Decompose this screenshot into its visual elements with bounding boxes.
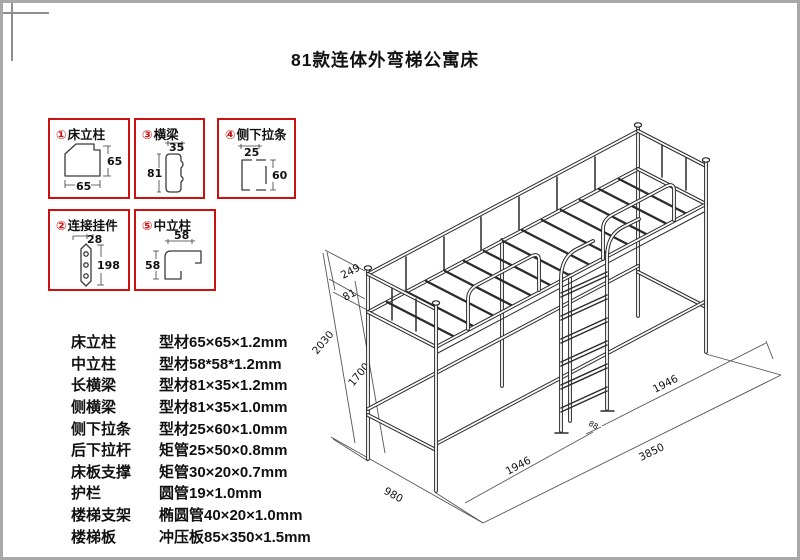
spec-row: 后下拉杆矩管25×50×0.8mm: [71, 439, 311, 461]
spec-row: 护栏圆管19×1.0mm: [71, 482, 311, 504]
spec-part: 中立柱: [71, 353, 159, 374]
dim-1946-left: 1946: [504, 454, 534, 477]
spec-value: 型材81×35×1.0mm: [159, 396, 287, 417]
spec-row: 楼梯板冲压板85×350×1.5mm: [71, 525, 311, 547]
spec-list: 床立柱型材65×65×1.2mm 中立柱型材58*58*1.2mm 长横梁型材8…: [71, 331, 311, 547]
dim-left: 81: [147, 167, 162, 180]
legend-box-connector: ②连接挂件 28 198: [48, 209, 130, 291]
legend-box-crossbeam: ③横梁 35 81: [134, 118, 205, 199]
spec-row: 侧横梁型材81×35×1.0mm: [71, 396, 311, 418]
spec-value: 型材81×35×1.2mm: [159, 374, 287, 395]
spec-part: 楼梯板: [71, 526, 159, 547]
profile-sketch-side-tie: 25 60: [220, 140, 294, 198]
spec-value: 型材58*58*1.2mm: [159, 353, 282, 374]
curved-ladder: [555, 219, 639, 433]
spec-part: 侧横梁: [71, 396, 159, 417]
spec-part: 护栏: [71, 482, 159, 503]
spec-value: 矩管25×50×0.8mm: [159, 439, 287, 460]
profile-sketch-connector: 28 198: [51, 231, 129, 291]
spec-part: 长横梁: [71, 374, 159, 395]
spec-value: 矩管30×20×0.7mm: [159, 461, 287, 482]
spec-row: 床板支撑矩管30×20×0.7mm: [71, 461, 311, 483]
dim-top: 25: [244, 146, 259, 159]
spec-part: 楼梯支架: [71, 504, 159, 525]
legend-box-bed-post: ①床立柱 65 65: [48, 118, 130, 199]
spec-part: 侧下拉条: [71, 418, 159, 439]
ladder-feet: [555, 411, 614, 433]
spec-value: 型材65×65×1.2mm: [159, 331, 287, 352]
profile-sketch-bed-post: 65 65: [51, 140, 129, 198]
spec-value: 椭圆管40×20×1.0mm: [159, 504, 302, 525]
dim-1946-right: 1946: [651, 373, 681, 396]
profile-sketch-crossbeam: 35 81: [137, 140, 203, 198]
dim-right: 198: [97, 259, 120, 272]
dim-88: 88: [587, 419, 600, 432]
dim-right: 65: [107, 155, 122, 168]
sheet-corner-mark-horizontal: [3, 12, 49, 14]
legend-box-side-tie: ④侧下拉条 25 60: [217, 118, 296, 199]
spec-row: 侧下拉条型材25×60×1.0mm: [71, 417, 311, 439]
spec-part: 床立柱: [71, 331, 159, 352]
dim-top: 35: [169, 141, 184, 154]
spec-value: 型材25×60×1.0mm: [159, 418, 287, 439]
dim-right: 60: [272, 169, 288, 182]
spec-part: 后下拉杆: [71, 439, 159, 460]
dim-left: 58: [145, 259, 160, 272]
dim-2030: 2030: [310, 329, 336, 357]
dim-bottom: 65: [76, 180, 91, 193]
dim-top: 28: [87, 233, 102, 246]
spec-row: 楼梯支架椭圆管40×20×1.0mm: [71, 504, 311, 526]
spec-part: 床板支撑: [71, 461, 159, 482]
spec-value: 冲压板85×350×1.5mm: [159, 526, 311, 547]
dim-top: 58: [174, 231, 189, 242]
profile-sketch-middle-post: 58 58: [137, 231, 215, 291]
isometric-bed-drawing: 249 81 2030 1700 980 3850 1946 1946 88: [303, 83, 800, 543]
spec-value: 圆管19×1.0mm: [159, 482, 262, 503]
dim-81: 81: [341, 287, 358, 304]
dim-249: 249: [339, 262, 362, 282]
legend-box-middle-post: ⑤中立柱 58 58: [134, 209, 216, 291]
dim-980: 980: [382, 485, 405, 505]
spec-row: 长横梁型材81×35×1.2mm: [71, 374, 311, 396]
page-title: 81款连体外弯梯公寓床: [291, 47, 479, 72]
spec-row: 床立柱型材65×65×1.2mm: [71, 331, 311, 353]
spec-row: 中立柱型材58*58*1.2mm: [71, 353, 311, 375]
drawing-sheet: 81款连体外弯梯公寓床 ①床立柱 65 65 ③横梁 35 81 ④侧下拉条 2…: [0, 0, 800, 560]
